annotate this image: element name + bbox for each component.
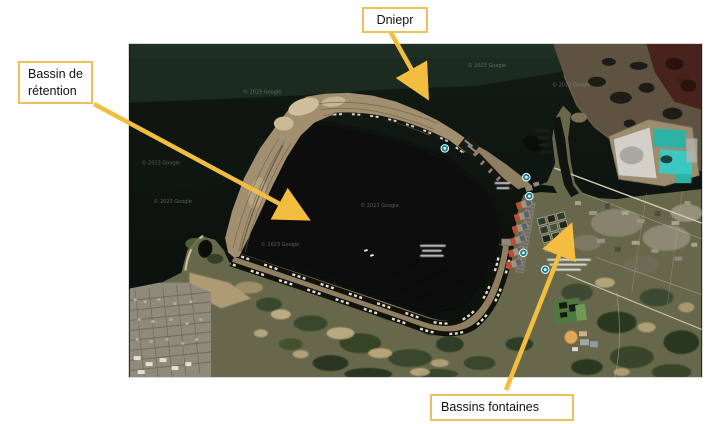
svg-text:© 2023 Google: © 2023 Google	[360, 202, 398, 209]
satellite-map-art: © 2023 Google © 2023 Google © 2023 Googl…	[129, 44, 702, 377]
callout-bassin-retention: Bassin de rétention	[18, 61, 93, 104]
callout-dniepr-label: Dniepr	[377, 12, 414, 29]
map-pin-icon	[441, 145, 449, 153]
map-pin-icon	[520, 249, 528, 257]
callout-dniepr: Dniepr	[362, 7, 428, 33]
svg-text:© 2023 Google: © 2023 Google	[552, 82, 590, 89]
callout-bassin-retention-label: Bassin de rétention	[28, 66, 91, 99]
callout-bassins-fontaines: Bassins fontaines	[430, 394, 574, 421]
callout-bassins-fontaines-label: Bassins fontaines	[441, 399, 539, 416]
settlement-grid	[129, 282, 219, 377]
satellite-image: © 2023 Google © 2023 Google © 2023 Googl…	[128, 43, 703, 378]
map-pin-icon	[526, 192, 534, 200]
svg-text:© 2023 Google: © 2023 Google	[154, 198, 192, 205]
map-pin-icon	[523, 173, 531, 181]
svg-text:© 2023 Google: © 2023 Google	[261, 241, 299, 248]
slide: © 2023 Google © 2023 Google © 2023 Googl…	[0, 0, 720, 424]
svg-text:© 2023 Google: © 2023 Google	[243, 89, 281, 96]
svg-text:© 2023 Google: © 2023 Google	[142, 159, 180, 166]
svg-text:© 2023 Google: © 2023 Google	[468, 62, 506, 69]
map-pin-icon	[541, 266, 549, 274]
